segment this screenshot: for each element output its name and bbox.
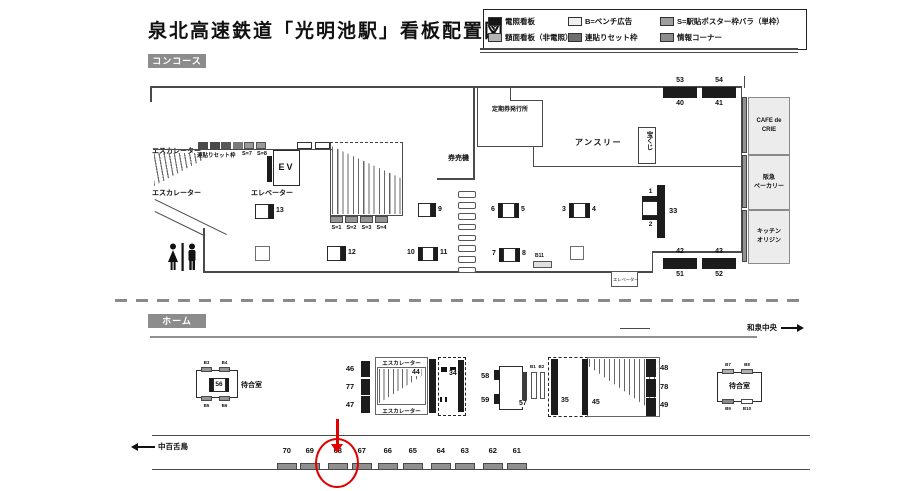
sign-bar [226, 378, 230, 392]
wall-sign-54-41 [702, 87, 736, 98]
arrow-left-icon [131, 443, 138, 451]
bench-b7 [722, 369, 734, 374]
bench-b4 [219, 367, 230, 372]
legend-item: 連貼りセット枠 [568, 32, 660, 43]
shop-anthree-label: アンスリー [575, 137, 622, 148]
bench-label-b9: B9 [720, 406, 736, 411]
legend-label: 情報コーナー [677, 32, 722, 43]
shop-cafe-de-crie: CAFE de CRIE [748, 97, 790, 155]
wall [153, 149, 333, 150]
bench-label-b10: B10 [739, 406, 755, 411]
sign-label-4: 4 [592, 206, 596, 213]
poster-frame-s4 [375, 216, 388, 223]
bottom-sign-66 [378, 463, 398, 470]
bench-b2 [540, 372, 546, 399]
wall [150, 86, 152, 102]
poster-set-frame [221, 142, 231, 149]
sign-label-9: 9 [438, 206, 442, 213]
sign-box-3-4 [573, 203, 586, 218]
sign-bar-45 [582, 359, 589, 415]
legend-label: 電照看板 [505, 16, 535, 27]
sign-bar [341, 246, 346, 261]
bench-label-b2: B2 [539, 364, 545, 369]
poster-frame [244, 142, 254, 149]
sign-bar-58 [494, 370, 500, 380]
sign-label-45: 45 [591, 399, 601, 406]
legend-label: 連貼りセット枠 [585, 32, 638, 43]
poster-set-frame [210, 142, 220, 149]
elevator-label: エレベーター [251, 188, 293, 198]
arrow-right-icon [797, 324, 804, 332]
header-rule [480, 48, 798, 50]
sign-bar-49 [646, 398, 656, 416]
ticket-office-wall [510, 86, 511, 101]
highlight-arrow-icon [331, 444, 343, 453]
ticket-machine [458, 224, 476, 231]
sign-label-62: 62 [483, 446, 503, 455]
shop-kitchen-origin: キッチン オリジン [748, 210, 790, 264]
sign-bar-33 [657, 185, 665, 238]
bench-label-b7: B7 [720, 362, 736, 367]
legend: 電照看板 B=ベンチ広告 S=駅貼ポスター枠バラ（単枠） 額面看板（非電照） 連… [483, 9, 807, 50]
sign-bar [431, 203, 436, 217]
restroom-icon [166, 243, 200, 271]
sign-bar [434, 247, 438, 261]
unlabeled-box [570, 246, 584, 260]
sign-label-44: 44 [411, 369, 421, 376]
highlight-arrow-icon [336, 419, 340, 444]
sign-bar-77 [361, 379, 370, 395]
legend-label: B=ベンチ広告 [585, 16, 632, 27]
bench-b3 [201, 367, 212, 372]
poster-frame [233, 142, 243, 149]
ticket-machine [458, 256, 476, 263]
sign-box-6-5 [502, 203, 515, 218]
info-corner-strip [742, 155, 747, 208]
legend-swatch [568, 33, 582, 42]
bottom-sign-70 [277, 463, 297, 470]
sign-label-47: 47 [342, 400, 358, 409]
wall-sign-label-54: 54 [702, 77, 736, 84]
poster-frame-s2 [345, 216, 358, 223]
bottom-sign-65 [403, 463, 423, 470]
bench-label-b5: B5 [199, 403, 214, 408]
sign-box-13 [255, 204, 269, 219]
sign-box-12 [327, 246, 341, 261]
section-divider [115, 299, 808, 302]
page-title: 泉北高速鉄道「光明池駅」看板配置図 [148, 16, 505, 43]
sign-label-3: 3 [562, 206, 566, 213]
ticket-office-label: 定期券発行所 [478, 104, 542, 113]
ticket-machine [458, 245, 476, 252]
ticket-machine [458, 267, 476, 274]
sign-box-10-11 [422, 247, 434, 261]
sign-bar-48 [646, 359, 656, 377]
sign-label-46: 46 [342, 364, 358, 373]
sign-label-6: 6 [491, 206, 495, 213]
poster-label-s4: S=4 [373, 225, 390, 231]
unlabeled-box [255, 246, 270, 261]
escalator-label-bottom: エスカレーター [376, 407, 427, 415]
sign-bar [269, 204, 274, 219]
bottom-sign-63 [455, 463, 475, 470]
bench-label-b8: B8 [739, 362, 755, 367]
sign-label-11: 11 [440, 249, 447, 256]
direction-right-label: 和泉中央 [747, 322, 777, 333]
dashed-bar [440, 397, 449, 402]
ev-label: EV [273, 162, 300, 172]
sign-label-35: 35 [560, 397, 570, 404]
sign-label-33: 33 [669, 206, 677, 215]
wall [150, 86, 742, 88]
ticket-office-wall [477, 86, 478, 147]
legend-item: B=ベンチ広告 [568, 16, 660, 27]
sign-bar-57 [522, 372, 527, 400]
sign-label-49: 49 [660, 400, 668, 409]
header-rule [480, 52, 798, 54]
sign-label-48: 48 [660, 363, 668, 372]
sign-bar [586, 203, 590, 218]
wall-sign-label-41: 41 [702, 100, 736, 107]
sign-label-b11: B11 [535, 253, 544, 259]
sign-bar-35 [551, 359, 558, 415]
legend-swatch [660, 17, 674, 26]
bench-label-b4: B4 [217, 360, 232, 365]
escalator-label: エスカレーター [152, 188, 201, 198]
sign-bar-47 [361, 396, 370, 413]
sign-box-7-8 [503, 248, 516, 262]
sign-label-5: 5 [521, 206, 525, 213]
wall [437, 178, 475, 180]
poster-frame-s1 [330, 216, 343, 223]
sign-placement-diagram: 泉北高速鉄道「光明池駅」看板配置図 電照看板 B=ベンチ広告 S=駅貼ポスター枠… [0, 0, 919, 491]
waiting-room-right-label: 待合室 [718, 381, 761, 391]
platform-edge [620, 328, 650, 329]
stairs-hatch [332, 145, 401, 214]
poster-label-s8: S=8 [257, 151, 267, 157]
sign-label-12: 12 [348, 249, 356, 256]
bench-b10 [741, 399, 753, 404]
bench-b8 [741, 369, 753, 374]
wall [744, 76, 745, 88]
bench-frame [315, 142, 330, 149]
legend-item: 電照看板 [488, 16, 568, 27]
ticket-machine [458, 191, 476, 198]
shop-wall [533, 166, 742, 167]
bench-frame [297, 142, 312, 149]
wall-sign-label-42: 42 [663, 248, 697, 255]
legend-item: S=駅貼ポスター枠バラ（単枠） [660, 16, 798, 27]
stairs-edge [330, 142, 403, 143]
wall-sign-label-52: 52 [702, 271, 736, 278]
sign-bar [515, 203, 519, 218]
sign-label-10: 10 [407, 249, 415, 256]
wall [652, 251, 654, 272]
bench-b9 [722, 399, 734, 404]
bench-label-b6: B6 [217, 403, 232, 408]
bottom-sign-64 [431, 463, 451, 470]
direction-left-label: 中百舌鳥 [158, 441, 188, 452]
bench-b6 [219, 396, 230, 401]
sign-label-66: 66 [378, 446, 398, 455]
sign-label-59: 59 [481, 395, 489, 404]
bottom-sign-61 [507, 463, 527, 470]
wall-sign-53-40 [663, 87, 697, 98]
legend-label: 額面看板（非電照） [505, 32, 573, 43]
sign-label-56: 56 [213, 381, 226, 388]
bench-b11 [533, 261, 552, 268]
sign-bar-46 [361, 361, 370, 377]
bench-label-b3: B3 [199, 360, 214, 365]
sign-label-13: 13 [276, 207, 284, 214]
wall [203, 271, 653, 273]
sign-label-77: 77 [342, 382, 358, 391]
sign-bar [429, 359, 436, 413]
shop-wall [533, 146, 534, 167]
wall [473, 86, 475, 179]
ticket-machine [458, 213, 476, 220]
bench-b5 [201, 396, 212, 401]
poster-set-label: 連貼りセット枠 [197, 151, 236, 159]
arrow-left-icon [138, 446, 155, 448]
bench-label-b1: B1 [530, 364, 536, 369]
platform-edge [152, 469, 810, 470]
sign-bar-78 [646, 379, 656, 397]
legend-swatch [488, 17, 502, 26]
info-corner-strip [742, 97, 747, 153]
poster-frame-s3 [360, 216, 373, 223]
sign-label-61: 61 [507, 446, 527, 455]
sign-label-65: 65 [403, 446, 423, 455]
sign-box-9 [418, 203, 431, 217]
arrow-right-icon [781, 327, 797, 329]
sign-bar [458, 360, 464, 412]
platform-edge [152, 435, 810, 436]
stairs-edge [330, 142, 331, 216]
wall-sign-label-53: 53 [663, 77, 697, 84]
waiting-room-left-label: 待合室 [241, 380, 262, 390]
legend-label: S=駅貼ポスター枠バラ（単枠） [677, 16, 784, 27]
sign-label-63: 63 [455, 446, 475, 455]
sign-label-64: 64 [431, 446, 451, 455]
wall-sign-42-51 [663, 258, 697, 269]
wall-sign-label-51: 51 [663, 271, 697, 278]
wall-sign-label-43: 43 [702, 248, 736, 255]
sign-bar [516, 248, 520, 262]
sign-label-57: 57 [518, 400, 528, 407]
legend-swatch [488, 33, 502, 42]
sign-label-58: 58 [481, 371, 489, 380]
platform-edge [150, 336, 757, 338]
escalator-hatch [154, 153, 202, 186]
ticket-machine [458, 235, 476, 242]
escalator-rail [154, 211, 205, 237]
shop-hankyu-bakery: 阪急 ベーカリー [748, 155, 790, 210]
sign-label-78: 78 [660, 382, 668, 391]
sign-bar-59 [494, 394, 500, 404]
ticket-office-wall [510, 100, 543, 101]
legend-swatch [568, 17, 582, 26]
section-badge-concourse: コンコース [148, 54, 206, 68]
ticket-machines-label: 券売機 [448, 153, 469, 163]
ticket-machine [458, 202, 476, 209]
elevator-small-label: エレベーター [613, 277, 636, 283]
wall-sign-43-52 [702, 258, 736, 269]
poster-label-s7: S=7 [242, 151, 252, 157]
section-badge-platform: ホーム [148, 314, 206, 328]
lottery-label: 宝くじ [643, 131, 653, 151]
sign-label-8: 8 [522, 250, 526, 257]
wall-sign-label-40: 40 [663, 100, 697, 107]
bench-b1 [531, 372, 537, 399]
sign-label-7: 7 [492, 250, 496, 257]
sign-label-70: 70 [277, 446, 297, 455]
escalator-label-top: エスカレーター [376, 359, 427, 367]
legend-item: 額面看板（非電照） [488, 32, 568, 43]
poster-set-frame [198, 142, 208, 149]
sign-bar [267, 156, 272, 182]
poster-frame [256, 142, 266, 149]
stairs-edge [402, 142, 403, 216]
sign-label-34: 34 [448, 370, 458, 377]
legend-item: 情報コーナー [660, 32, 798, 43]
legend-swatch [660, 33, 674, 42]
info-corner-strip [742, 210, 747, 262]
bottom-sign-62 [483, 463, 503, 470]
